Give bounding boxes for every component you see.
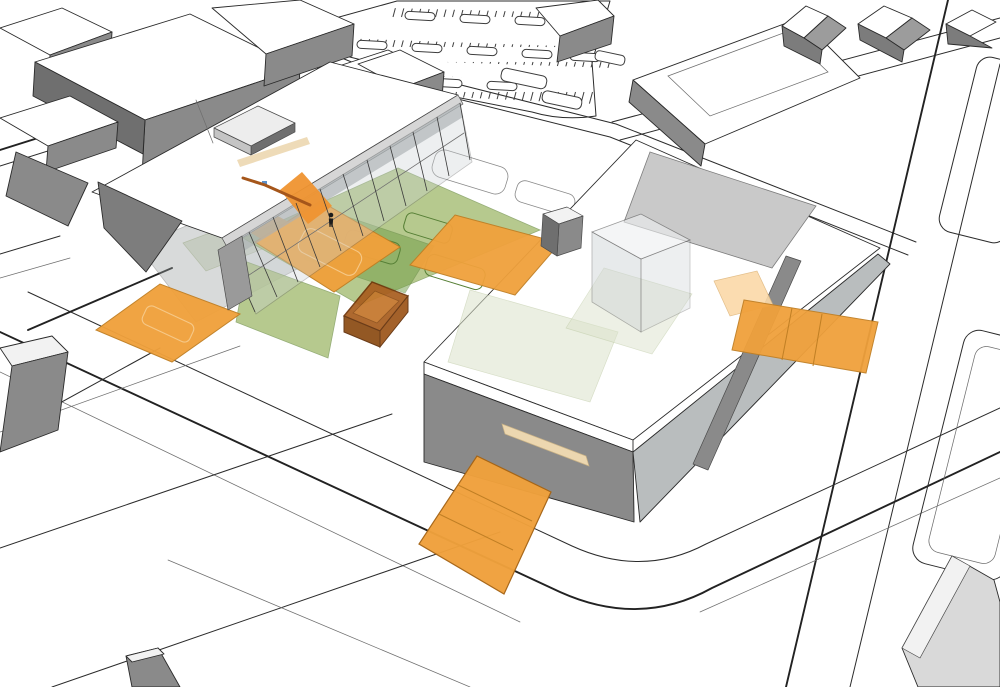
gray-cube bbox=[541, 207, 583, 256]
parking-island bbox=[357, 40, 387, 50]
figure-head bbox=[329, 213, 334, 218]
parking-island bbox=[405, 11, 435, 21]
axon-render bbox=[0, 0, 1000, 687]
parking-island bbox=[412, 43, 442, 53]
parking-island bbox=[467, 46, 497, 56]
parking-island bbox=[515, 16, 545, 26]
parking-island bbox=[460, 14, 490, 24]
parking-island bbox=[522, 49, 552, 59]
scene-canvas bbox=[0, 0, 1000, 687]
